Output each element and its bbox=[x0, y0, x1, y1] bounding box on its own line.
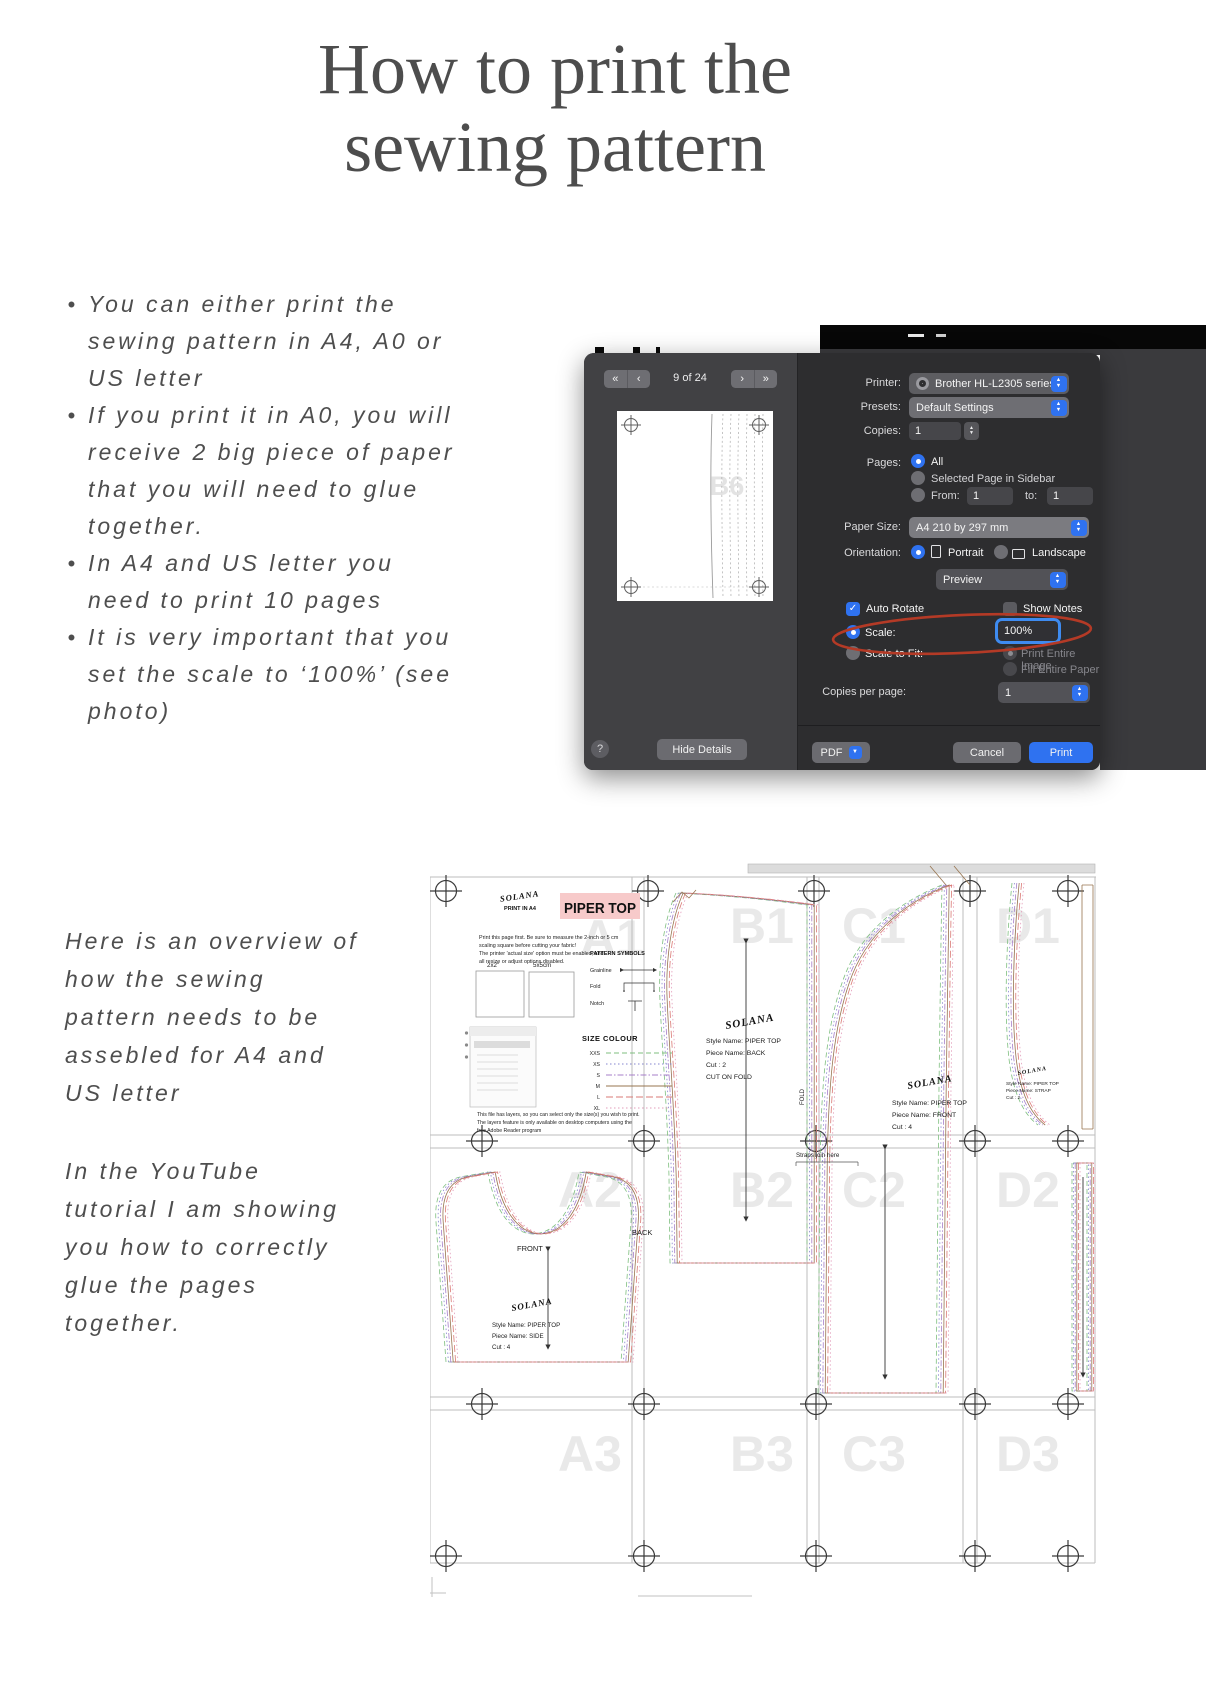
grainline-arrows bbox=[548, 941, 1083, 1377]
background-window bbox=[1100, 347, 1206, 770]
svg-text:A3: A3 bbox=[558, 1426, 622, 1482]
registration-mark-icon bbox=[621, 415, 641, 435]
bullet-text: If you print it in A0, you will bbox=[88, 397, 455, 434]
from-input[interactable]: 1 bbox=[967, 487, 1013, 505]
svg-text:D3: D3 bbox=[996, 1426, 1060, 1482]
scale-label: Scale: bbox=[865, 627, 896, 639]
printer-select[interactable]: Brother HL-L2305 series ▲▼ bbox=[909, 373, 1069, 394]
svg-text:XS: XS bbox=[593, 1062, 600, 1068]
svg-text:L: L bbox=[597, 1095, 600, 1101]
presets-label: Presets: bbox=[798, 401, 901, 413]
svg-text:free Adobe Reader program: free Adobe Reader program bbox=[477, 1128, 541, 1134]
landscape-radio[interactable] bbox=[994, 545, 1008, 559]
fill-entire-paper-label: Fill Entire Paper bbox=[1021, 664, 1099, 676]
chevron-down-icon: ▼ bbox=[849, 746, 862, 759]
list-item: • It is very important that you set the … bbox=[55, 619, 455, 730]
presets-select[interactable]: Default Settings ▲▼ bbox=[909, 397, 1069, 418]
list-item: • If you print it in A0, you will receiv… bbox=[55, 397, 455, 545]
svg-text:Notch: Notch bbox=[590, 1001, 604, 1007]
svg-text:C2: C2 bbox=[842, 1162, 906, 1218]
svg-text:S: S bbox=[597, 1073, 601, 1079]
background-toolbar-mark bbox=[908, 334, 924, 337]
svg-text:Cut : 2: Cut : 2 bbox=[1006, 1095, 1020, 1101]
svg-text:Style Name: PIPER TOP: Style Name: PIPER TOP bbox=[1006, 1081, 1059, 1087]
pdf-menu-button[interactable]: PDF ▼ bbox=[812, 742, 870, 763]
document-page: How to print the sewing pattern • You ca… bbox=[0, 0, 1206, 1706]
brand-logo: SOLANA bbox=[724, 1012, 775, 1032]
orientation-label: Orientation: bbox=[798, 547, 901, 559]
svg-text:The printer 'actual size' opti: The printer 'actual size' option must be… bbox=[479, 951, 604, 957]
copies-label: Copies: bbox=[798, 425, 901, 437]
svg-text:Cut : 4: Cut : 4 bbox=[892, 1124, 912, 1131]
printer-status-icon bbox=[916, 377, 929, 390]
svg-text:Style Name: PIPER TOP: Style Name: PIPER TOP bbox=[892, 1100, 967, 1107]
presets-value: Default Settings bbox=[916, 402, 994, 414]
dialog-settings-pane: Printer: Brother HL-L2305 series ▲▼ Pres… bbox=[797, 353, 1100, 770]
overview-paragraph: Here is an overview of how the sewing pa… bbox=[65, 922, 359, 1112]
list-item: • In A4 and US letter you need to print … bbox=[55, 545, 455, 619]
page-indicator: 9 of 24 bbox=[650, 372, 730, 384]
background-toolbar bbox=[820, 325, 1206, 349]
svg-text:M: M bbox=[596, 1084, 600, 1090]
print-dialog-screenshot: « ‹ 9 of 24 › » B6 bbox=[537, 325, 1206, 770]
page-nav-back[interactable]: « ‹ bbox=[604, 370, 650, 388]
scale-to-fit-radio[interactable] bbox=[846, 646, 860, 660]
divider bbox=[798, 725, 1100, 726]
first-page-icon[interactable]: « bbox=[604, 370, 628, 388]
svg-text:C3: C3 bbox=[842, 1426, 906, 1482]
copies-per-page-value: 1 bbox=[1005, 687, 1011, 699]
svg-text:The layers feature is only ava: The layers feature is only available on … bbox=[477, 1120, 632, 1126]
copies-input[interactable]: 1 bbox=[909, 422, 961, 440]
svg-text:B3: B3 bbox=[730, 1426, 794, 1482]
side-piece-labels: FRONT SOLANA Style Name: PIPER TOP Piece… bbox=[492, 1244, 560, 1351]
auto-rotate-label: Auto Rotate bbox=[866, 603, 924, 615]
paper-size-select[interactable]: A4 210 by 297 mm ▲▼ bbox=[909, 517, 1089, 538]
symbols-heading: PATTERN SYMBOLS bbox=[590, 951, 645, 957]
section-value: Preview bbox=[943, 574, 982, 586]
last-page-icon[interactable]: » bbox=[755, 370, 778, 388]
copies-stepper[interactable]: ▲ ▼ bbox=[964, 422, 979, 440]
page-nav-forward[interactable]: › » bbox=[731, 370, 777, 388]
size-colour-legend: XXS XS S M L XL bbox=[590, 1051, 672, 1112]
paper-size-value: A4 210 by 297 mm bbox=[916, 522, 1008, 534]
landscape-icon bbox=[1012, 549, 1025, 559]
dropdown-caret-icon: ▲▼ bbox=[1071, 520, 1087, 536]
list-item: • You can either print the sewing patter… bbox=[55, 286, 455, 397]
svg-text:XXS: XXS bbox=[590, 1051, 601, 1057]
svg-text:scaling square before cutting: scaling square before cutting your fabri… bbox=[479, 943, 577, 949]
notch-symbol bbox=[628, 1001, 642, 1011]
svg-text:Piece Name: BACK: Piece Name: BACK bbox=[706, 1050, 766, 1057]
print-format-label: PRINT IN A4 bbox=[504, 906, 537, 912]
cancel-button[interactable]: Cancel bbox=[953, 742, 1021, 763]
pages-all-label: All bbox=[931, 456, 943, 468]
page-title-line2: sewing pattern bbox=[95, 108, 1015, 186]
bullet-text: You can either print the bbox=[88, 286, 443, 323]
svg-text:Grainline: Grainline bbox=[590, 968, 612, 974]
registration-mark-icon bbox=[749, 577, 769, 597]
svg-text:This file has layers, so you c: This file has layers, so you can select … bbox=[477, 1112, 640, 1118]
layers-panel-thumbnail bbox=[465, 1027, 536, 1107]
scale-to-fit-label: Scale to Fit: bbox=[865, 648, 923, 660]
pattern-overview-image: A1 B1 C1 D1 A2 B2 C2 D2 A3 B3 C3 D3 bbox=[430, 863, 1106, 1600]
check-icon: ✓ bbox=[849, 603, 857, 614]
svg-text:Style Name: PIPER TOP: Style Name: PIPER TOP bbox=[492, 1322, 560, 1329]
show-notes-checkbox[interactable] bbox=[1003, 602, 1017, 616]
test-square-label: 5x5cm bbox=[533, 962, 551, 969]
bullet-icon: • bbox=[55, 397, 88, 545]
svg-text:Print this page first. Be sure: Print this page first. Be sure to measur… bbox=[479, 935, 619, 941]
bullet-icon: • bbox=[55, 619, 88, 730]
svg-text:Piece Name: STRAP: Piece Name: STRAP bbox=[1006, 1088, 1051, 1094]
scale-radio[interactable] bbox=[846, 625, 860, 639]
to-input[interactable]: 1 bbox=[1047, 487, 1093, 505]
svg-text:Piece Name: SIDE: Piece Name: SIDE bbox=[492, 1333, 544, 1340]
registration-mark-icon bbox=[749, 415, 769, 435]
bullet-text: It is very important that you bbox=[88, 619, 452, 656]
pattern-piece-strap-rect bbox=[1072, 1163, 1095, 1391]
svg-text:C1: C1 bbox=[842, 898, 906, 954]
registration-mark-icon bbox=[621, 577, 641, 597]
pattern-piece-front-large bbox=[818, 885, 954, 1393]
prev-page-icon[interactable]: ‹ bbox=[628, 370, 651, 388]
bullet-list: • You can either print the sewing patter… bbox=[55, 286, 455, 730]
dropdown-caret-icon: ▲▼ bbox=[1050, 572, 1066, 588]
youtube-paragraph: In the YouTube tutorial I am showing you… bbox=[65, 1152, 339, 1342]
bullet-icon: • bbox=[55, 286, 88, 397]
svg-text:B1: B1 bbox=[730, 898, 794, 954]
from-label: From: bbox=[931, 490, 960, 502]
print-dialog: « ‹ 9 of 24 › » B6 bbox=[584, 353, 1100, 770]
landscape-label: Landscape bbox=[1032, 547, 1086, 559]
test-square bbox=[476, 971, 524, 1017]
pages-label: Pages: bbox=[798, 457, 901, 469]
page-title-line1: How to print the bbox=[95, 30, 1015, 108]
hide-details-button[interactable]: Hide Details bbox=[657, 739, 747, 760]
brand-logo: SOLANA bbox=[511, 1296, 554, 1313]
printer-label: Printer: bbox=[798, 377, 901, 389]
to-label: to: bbox=[1025, 490, 1037, 502]
svg-text:Style Name: PIPER TOP: Style Name: PIPER TOP bbox=[706, 1038, 781, 1045]
svg-text:Piece Name: FRONT: Piece Name: FRONT bbox=[892, 1112, 956, 1119]
show-notes-label: Show Notes bbox=[1023, 603, 1082, 615]
piece-title: PIPER TOP bbox=[564, 900, 636, 917]
print-button[interactable]: Print bbox=[1029, 742, 1093, 763]
strap-piece-labels: SOLANA Style Name: PIPER TOP Piece Name:… bbox=[1006, 1066, 1059, 1101]
portrait-radio[interactable] bbox=[911, 545, 925, 559]
front-label: FRONT bbox=[517, 1244, 543, 1253]
background-toolbar-mark bbox=[936, 334, 946, 337]
auto-rotate-checkbox[interactable]: ✓ bbox=[846, 602, 860, 616]
dialog-preview-pane: « ‹ 9 of 24 › » B6 bbox=[584, 353, 797, 770]
copies-per-page-label: Copies per page: bbox=[798, 686, 906, 698]
help-button[interactable]: ? bbox=[591, 740, 609, 758]
portrait-icon bbox=[931, 545, 941, 558]
straps-join-label: Straps join here bbox=[796, 1152, 840, 1159]
svg-text:B2: B2 bbox=[730, 1162, 794, 1218]
preview-watermark: B6 bbox=[710, 471, 745, 501]
back-label: BACK bbox=[632, 1228, 652, 1237]
size-colour-heading: SIZE COLOUR bbox=[582, 1034, 638, 1043]
pages-selected-label: Selected Page in Sidebar bbox=[931, 473, 1055, 485]
svg-text:Fold: Fold bbox=[590, 984, 601, 990]
bullet-text: In A4 and US letter you bbox=[88, 545, 394, 582]
svg-text:Cut : 4: Cut : 4 bbox=[492, 1344, 511, 1351]
svg-text:D1: D1 bbox=[996, 898, 1060, 954]
bullet-icon: • bbox=[55, 545, 88, 619]
page-preview-thumbnail: B6 bbox=[617, 411, 773, 601]
brand-logo: SOLANA bbox=[499, 888, 540, 903]
settings-section-select[interactable]: Preview ▲▼ bbox=[936, 569, 1068, 590]
portrait-label: Portrait bbox=[948, 547, 983, 559]
svg-text:D2: D2 bbox=[996, 1162, 1060, 1218]
test-square bbox=[529, 972, 574, 1017]
stepper-down-icon[interactable]: ▼ bbox=[969, 431, 974, 437]
printer-value: Brother HL-L2305 series bbox=[935, 378, 1051, 390]
pages-selected-radio[interactable] bbox=[911, 471, 925, 485]
svg-text:A2: A2 bbox=[558, 1162, 622, 1218]
scale-input[interactable]: 100% bbox=[998, 621, 1058, 641]
dropdown-caret-icon: ▲▼ bbox=[1051, 400, 1067, 416]
svg-text:Cut : 2: Cut : 2 bbox=[706, 1062, 726, 1069]
copies-per-page-select[interactable]: 1 ▲▼ bbox=[998, 682, 1090, 703]
fold-symbol bbox=[624, 983, 654, 990]
fill-entire-paper-radio[interactable] bbox=[1003, 662, 1017, 676]
dropdown-caret-icon: ▲▼ bbox=[1051, 376, 1067, 392]
page-title: How to print the sewing pattern bbox=[95, 30, 1015, 186]
next-page-icon[interactable]: › bbox=[731, 370, 755, 388]
paper-size-label: Paper Size: bbox=[798, 521, 901, 533]
pages-all-radio[interactable] bbox=[911, 454, 925, 468]
pages-range-radio[interactable] bbox=[911, 488, 925, 502]
print-entire-image-radio[interactable] bbox=[1003, 646, 1017, 660]
svg-text:CUT ON FOLD: CUT ON FOLD bbox=[706, 1074, 752, 1081]
test-square-label: 2x2" bbox=[487, 962, 499, 969]
fold-label: FOLD bbox=[800, 1088, 806, 1105]
dropdown-caret-icon: ▲▼ bbox=[1072, 685, 1088, 701]
